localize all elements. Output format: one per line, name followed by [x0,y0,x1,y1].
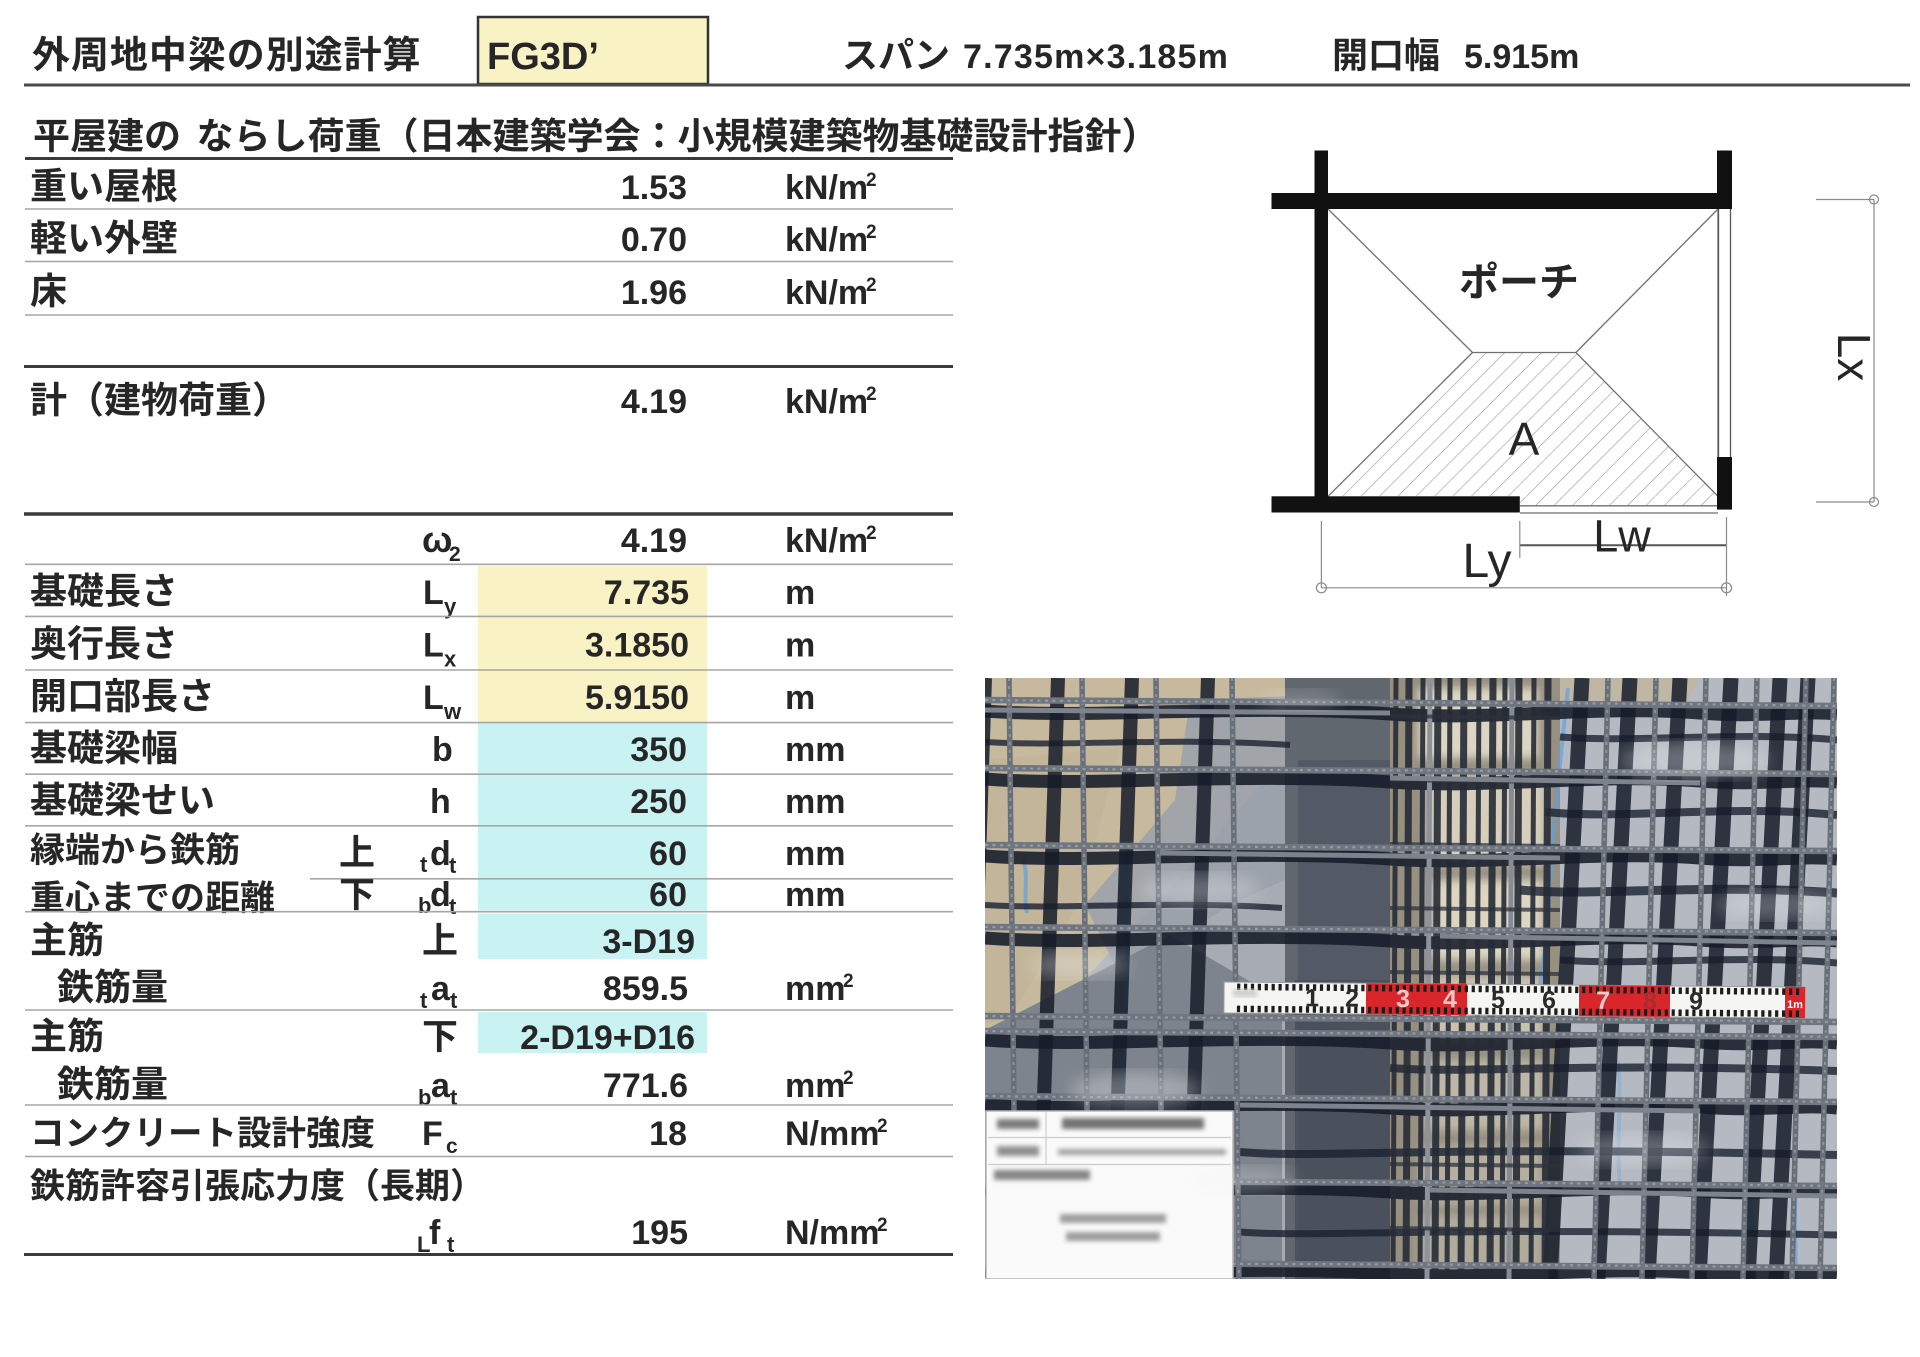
svg-text:1.96: 1.96 [621,274,687,312]
svg-text:N/mm: N/mm [785,1214,879,1252]
svg-text:mm: mm [785,731,845,769]
svg-text:b: b [432,731,453,769]
svg-text:2: 2 [866,275,877,296]
svg-text:195: 195 [631,1214,688,1252]
svg-text:a: a [431,970,451,1008]
svg-text:mm: mm [785,1067,845,1105]
svg-text:0.70: 0.70 [621,221,687,259]
svg-text:250: 250 [630,783,687,821]
svg-text:6: 6 [1542,986,1556,1014]
svg-text:m: m [785,627,815,665]
svg-text:60: 60 [649,876,687,914]
svg-text:60: 60 [649,835,687,873]
svg-text:2: 2 [449,543,461,566]
svg-text:2: 2 [843,1068,854,1089]
svg-text:h: h [430,783,451,821]
svg-text:mm: mm [785,835,845,873]
svg-text:F: F [422,1115,443,1153]
svg-text:t: t [449,894,457,919]
svg-text:t: t [450,1085,458,1110]
svg-text:2: 2 [877,1116,888,1137]
svg-text:x: x [444,647,457,672]
svg-text:2: 2 [843,971,854,992]
svg-text:w: w [443,699,462,724]
svg-text:L: L [423,574,444,612]
svg-text:350: 350 [630,731,687,769]
svg-text:7: 7 [1596,987,1610,1015]
svg-text:mm: mm [785,783,845,821]
svg-text:L: L [423,679,444,717]
svg-text:3: 3 [1396,985,1410,1013]
svg-text:kN/m: kN/m [785,522,868,560]
svg-text:9: 9 [1689,988,1703,1016]
svg-text:2: 2 [866,222,877,243]
svg-text:Ly: Ly [1463,535,1512,588]
svg-text:771.6: 771.6 [603,1067,688,1105]
svg-text:FG3D’: FG3D’ [487,36,599,78]
svg-text:7.735: 7.735 [604,574,689,612]
svg-text:d: d [430,835,451,873]
svg-text:mm: mm [785,876,845,914]
svg-text:Lx: Lx [1828,333,1880,382]
svg-text:ω: ω [422,519,452,560]
svg-text:8: 8 [1643,987,1657,1015]
svg-text:kN/m: kN/m [785,383,868,421]
svg-text:m: m [785,574,815,612]
svg-text:A: A [1509,413,1540,465]
svg-text:f: f [429,1214,441,1252]
svg-text:2: 2 [877,1215,888,1236]
svg-text:a: a [431,1067,451,1105]
svg-text:5.915m: 5.915m [1464,38,1579,76]
svg-text:N/mm: N/mm [785,1115,879,1153]
svg-text:2: 2 [1345,985,1359,1013]
svg-text:t: t [420,852,428,877]
svg-text:mm: mm [785,970,845,1008]
svg-text:y: y [444,594,457,619]
svg-text:4.19: 4.19 [621,522,687,560]
svg-text:2: 2 [866,523,877,544]
svg-text:4: 4 [1443,985,1457,1013]
svg-text:d: d [430,876,451,914]
svg-text:3.1850: 3.1850 [585,627,689,665]
svg-text:kN/m: kN/m [785,221,868,259]
svg-text:m: m [785,679,815,717]
svg-text:Lw: Lw [1593,511,1651,562]
svg-text:t: t [449,853,457,878]
svg-text:1.53: 1.53 [621,169,687,207]
svg-text:1m: 1m [1787,999,1803,1011]
svg-text:5.9150: 5.9150 [585,679,689,717]
svg-text:b: b [418,1085,431,1110]
svg-text:5: 5 [1491,986,1505,1014]
svg-text:L: L [423,627,444,665]
svg-text:1: 1 [1305,984,1319,1012]
svg-text:2: 2 [866,170,877,191]
svg-text:kN/m: kN/m [785,169,868,207]
svg-text:c: c [446,1135,458,1158]
svg-text:3-D19: 3-D19 [602,923,695,961]
svg-text:4.19: 4.19 [621,383,687,421]
svg-text:18: 18 [649,1115,687,1153]
svg-text:859.5: 859.5 [603,970,688,1008]
svg-text:2: 2 [866,384,877,405]
svg-text:kN/m: kN/m [785,274,868,312]
svg-text:7.735m×3.185m: 7.735m×3.185m [963,38,1229,76]
svg-text:2-D19+D16: 2-D19+D16 [520,1019,695,1057]
